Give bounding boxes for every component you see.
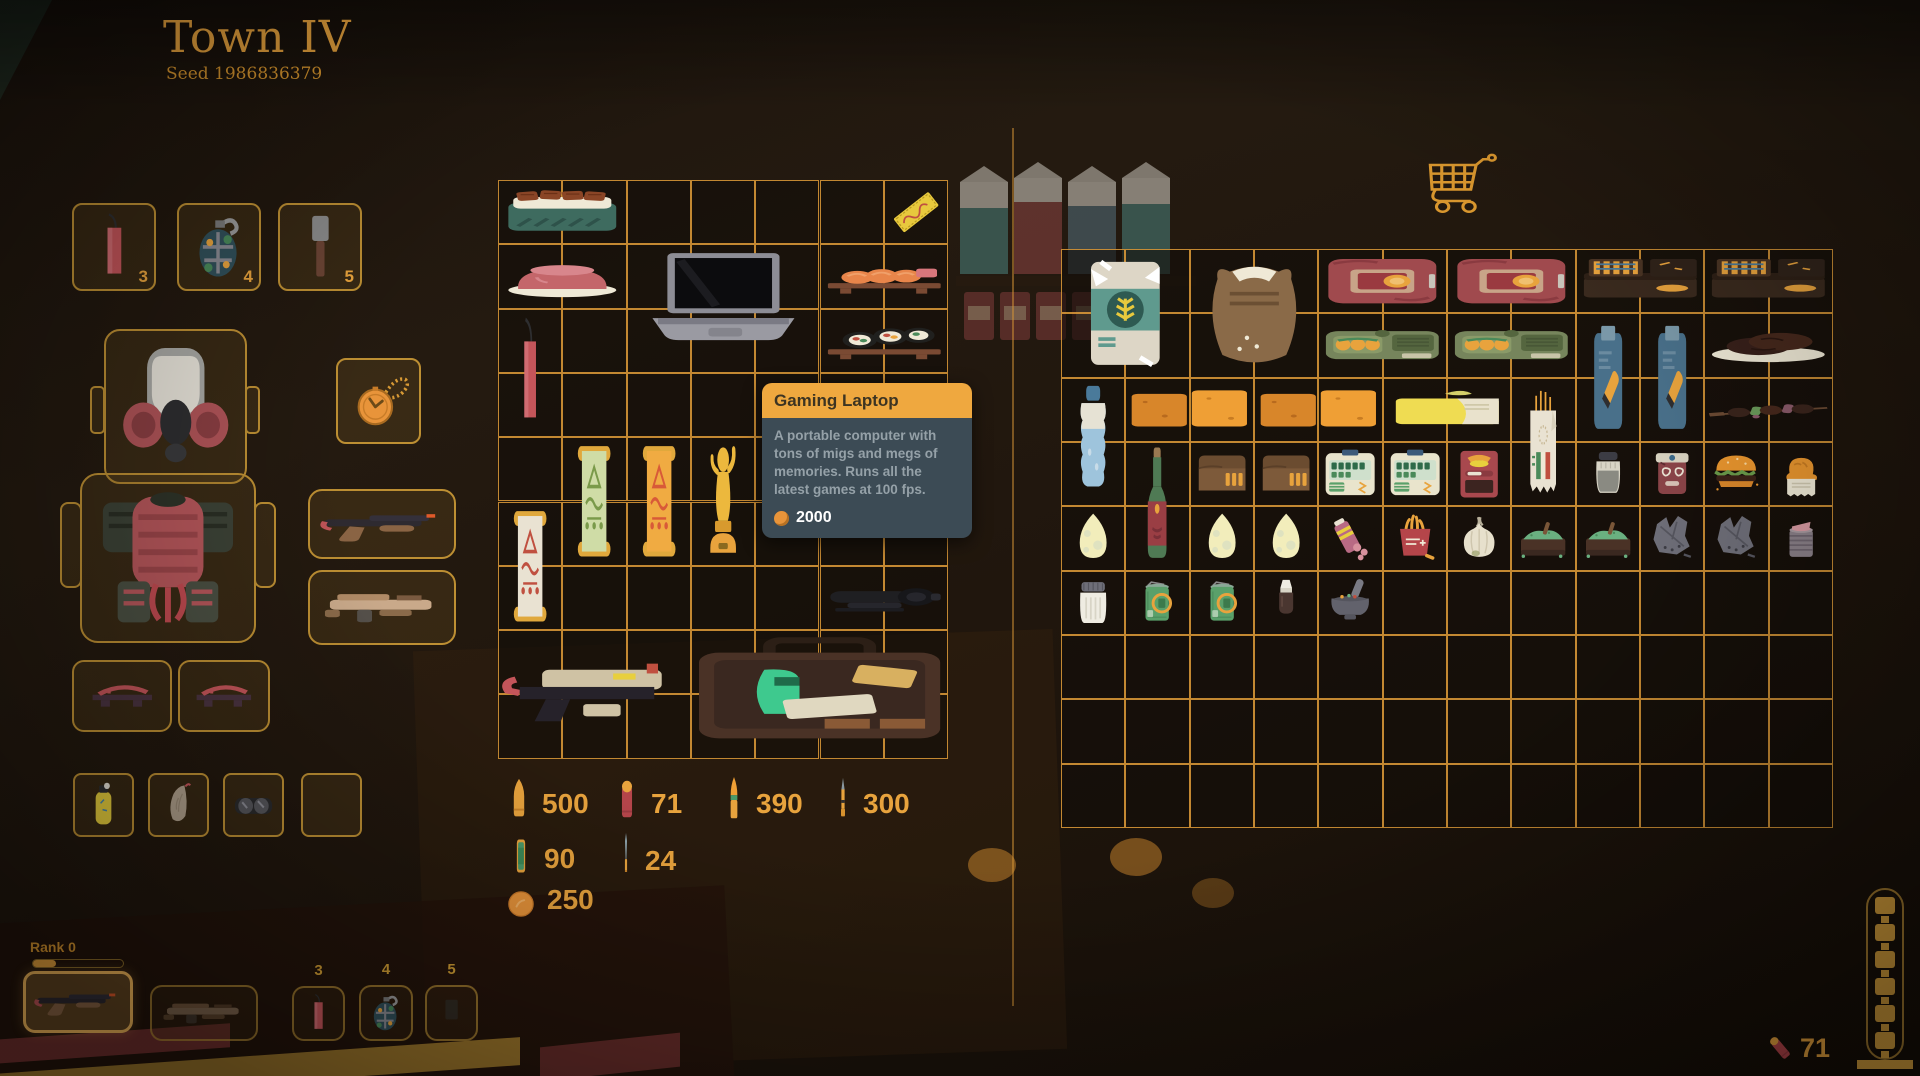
pocket-watch-icon [338,360,419,442]
trinket-slot[interactable] [336,358,421,444]
kebab-skewer[interactable] [1707,381,1830,439]
shop-grid-cell[interactable] [1383,571,1447,635]
quick-slot-grenade[interactable]: 4 [177,203,261,291]
scroll-orange[interactable] [630,440,688,563]
ammo-pouch[interactable] [1193,445,1251,503]
head-slot-ear-right [245,386,260,434]
open-can[interactable] [1772,509,1830,567]
coin-on-counter [1192,878,1234,908]
panel-divider [1012,128,1014,1006]
shoe-slot[interactable] [72,660,172,732]
shop-grid-cell[interactable] [1576,635,1640,699]
green-can[interactable] [1128,574,1186,632]
player-grid-cell[interactable] [562,309,626,373]
seed-label: Seed 1986836379 [166,64,322,84]
ammo-count: 71 [651,790,682,824]
background-banner [0,0,52,100]
metal-scrap[interactable] [1643,509,1701,567]
shop-grid-cell[interactable] [1769,764,1833,828]
sardine-tin[interactable] [1450,316,1573,374]
shop-grid-cell[interactable] [1769,571,1833,635]
flour-sack[interactable] [1193,252,1316,375]
shop-grid-cell[interactable] [1640,635,1704,699]
rank-progress-fill [33,960,56,967]
egg[interactable] [1193,509,1251,567]
unagi-bento[interactable] [501,183,624,241]
garlic[interactable] [1450,509,1508,567]
coin-on-counter [968,848,1016,882]
shop-grid-cell[interactable] [1190,699,1254,763]
magazine-base [1857,1060,1913,1069]
ammo-counter-bullet-rifle: 390 [722,776,803,824]
weapon-slot-rifle[interactable] [308,570,456,645]
gas-mask-icon [106,331,245,482]
quick-slot-dynamite[interactable]: 3 [72,203,156,291]
ammo-count: 90 [544,845,575,879]
hotbar-dynamite[interactable] [292,986,345,1041]
background-stripe-yellow [0,1037,520,1076]
player-grid-cell[interactable] [755,180,819,244]
butter-boxes[interactable] [1128,381,1251,439]
ammo-count: 250 [547,886,594,920]
background-stripe-red2 [540,1033,680,1076]
powder-box[interactable] [1579,509,1637,567]
ammo-counter-dart-blue: 24 [617,831,676,881]
shop-grid-cell[interactable] [1190,635,1254,699]
scroll-green[interactable] [565,440,623,563]
misc-slot-goggles[interactable] [223,773,284,837]
shop-grid-cell[interactable] [1704,571,1768,635]
shop-grid-cell[interactable] [1318,764,1382,828]
shop-grid-cell[interactable] [1125,699,1189,763]
scroll-white[interactable] [501,505,559,628]
player-grid-cell[interactable] [820,180,884,244]
salt-shaker[interactable] [1064,574,1122,632]
player-grid-cell[interactable] [691,180,755,244]
water-bottle[interactable] [1064,381,1122,504]
shop-grid-cell[interactable] [1511,635,1575,699]
shop-grid-cell[interactable] [1576,699,1640,763]
bullet-rifle-icon [722,776,746,824]
ammo-counter-coin: 250 [505,886,594,920]
ammo-counter-bullet-pistol: 500 [506,776,589,824]
magazine-shell-icon [1875,1032,1895,1058]
magazine-indicator [1866,888,1904,1060]
maki-roll-board[interactable] [823,312,946,370]
shop-grid-cell[interactable] [1061,699,1125,763]
samurai-armor-icon [82,475,254,641]
shop-grid-cell[interactable] [1640,571,1704,635]
ration-box[interactable] [1386,445,1444,503]
metal-scrap[interactable] [1707,509,1765,567]
shell-counter: 71 [1768,1032,1830,1064]
dynamite-stick[interactable] [501,312,559,435]
shop-grid-cell[interactable] [1576,764,1640,828]
player-grid-cell[interactable] [755,566,819,630]
game-screen: Town IV Seed 1986836379 Gaming Laptop A … [0,0,1920,1076]
player-grid-cell[interactable] [691,566,755,630]
player-grid-cell[interactable] [627,180,691,244]
shop-grid-cell[interactable] [1447,699,1511,763]
shop-grid-cell[interactable] [1125,764,1189,828]
shell-red-icon [613,776,641,824]
shop-grid-cell[interactable] [1254,764,1318,828]
powder-box[interactable] [1514,509,1572,567]
pistol[interactable] [501,633,688,756]
hotbar-rifle[interactable] [150,985,258,1041]
shop-grid-cell[interactable] [1640,764,1704,828]
shop-grid [1061,249,1833,828]
shop-grid-cell[interactable] [1769,699,1833,763]
shop-grid-cell[interactable] [1511,571,1575,635]
magazine-shell-icon [1875,924,1895,950]
magazine-shell-icon [1875,1005,1895,1031]
candy-pack[interactable] [1321,509,1379,567]
background-wall [1020,0,1920,150]
hotbar-slot-number: 4 [359,961,413,978]
shop-grid-cell[interactable] [1576,571,1640,635]
head-slot-ear-left [90,386,105,434]
shop-grid-cell[interactable] [1769,635,1833,699]
head-slot[interactable] [104,329,247,484]
egg[interactable] [1257,509,1315,567]
player-grid-cell[interactable] [562,373,626,437]
shop-grid-cell[interactable] [1061,764,1125,828]
shop-grid-cell[interactable] [1511,699,1575,763]
misc-slot-canister-yellow[interactable] [73,773,134,837]
shop-grid-cell[interactable] [1704,635,1768,699]
ammo-counter-battery-green: 90 [508,833,575,879]
shop-grid-cell[interactable] [1383,635,1447,699]
coin-icon [774,511,789,526]
shop-grid-cell[interactable] [1190,764,1254,828]
dropper-bottle[interactable] [1257,574,1315,632]
player-grid-cell[interactable] [627,566,691,630]
butter[interactable] [1386,381,1509,439]
snack-pack[interactable] [1450,445,1508,503]
tooltip-description: A portable computer with tons of migs an… [774,427,960,499]
tooltip-title: Gaming Laptop [762,383,972,418]
shop-grid-cell[interactable] [1704,764,1768,828]
body-slot[interactable] [80,473,256,643]
fried-chicken[interactable] [1772,445,1830,503]
jam-jar[interactable] [1643,445,1701,503]
hotbar-shotgun[interactable] [23,971,133,1033]
magazine-shell-icon [1875,978,1895,1004]
shop-grid-cell[interactable] [1447,635,1511,699]
dart-blue-icon [617,831,635,881]
steak-plate[interactable] [1707,316,1830,374]
body-slot-arm-left [60,502,82,588]
hotbar-slot-number: 5 [425,961,478,978]
ammo-pouch[interactable] [1257,445,1315,503]
ammo-counter-shell-red: 71 [613,776,682,824]
tooltip-price: 2000 [796,509,832,527]
ammo-count: 390 [756,790,803,824]
mortar-pestle[interactable] [1321,574,1379,632]
page-title: Town IV [163,12,352,63]
item-tooltip: Gaming Laptop A portable computer with t… [762,383,972,538]
coin-on-counter [1110,838,1162,876]
ham-plate[interactable] [501,247,624,305]
salmon-sushi-board[interactable] [823,247,946,305]
shop-grid-cell[interactable] [1640,699,1704,763]
weapon-slot-shotgun[interactable] [308,489,456,559]
shop-grid-cell[interactable] [1383,699,1447,763]
rifle-scope[interactable] [823,569,946,627]
shop-grid-cell[interactable] [1125,635,1189,699]
hotbar-grenade[interactable] [359,985,413,1041]
ammo-count: 24 [645,847,676,881]
egg[interactable] [1064,509,1122,567]
shop-grid-cell[interactable] [1061,635,1125,699]
player-grid-cell[interactable] [562,566,626,630]
bullet-sniper-icon [833,776,853,824]
ration-box[interactable] [1321,445,1379,503]
misc-slot-empty[interactable] [301,773,362,837]
toolbox[interactable] [694,633,945,756]
player-grid-cell[interactable] [691,373,755,437]
wine-bottle[interactable] [1128,445,1186,568]
shop-grid-cell[interactable] [1254,635,1318,699]
sardine-tin[interactable] [1321,316,1444,374]
magazine-shell-icon [1875,951,1895,977]
magazine-shell-icon [1875,897,1895,923]
player-grid-cell[interactable] [498,437,562,501]
ammo-counter-bullet-sniper: 300 [833,776,910,824]
shop-grid-cell[interactable] [1254,699,1318,763]
golden-ticket[interactable] [887,183,945,241]
shop-grid-cell[interactable] [1383,764,1447,828]
canned-ham[interactable] [1450,252,1573,310]
shopping-cart-icon[interactable] [1418,152,1506,224]
burger[interactable] [1707,445,1765,503]
gaming-laptop[interactable] [630,247,817,370]
shop-grid-cell[interactable] [1447,764,1511,828]
shell-count-value: 71 [1800,1033,1830,1064]
quick-slot-count: 5 [345,267,354,287]
bullet-packet[interactable] [1579,316,1637,439]
rank-progress-bar [32,959,124,968]
hotbar-slot-5[interactable] [425,985,478,1041]
shop-grid-cell[interactable] [1318,635,1382,699]
bullet-pistol-icon [506,776,532,824]
misc-slot-lung[interactable] [148,773,209,837]
battery-green-icon [508,833,534,879]
coin-icon [505,888,537,920]
baguette[interactable] [1514,381,1572,504]
body-slot-arm-right [254,502,276,588]
hotbar-slot-number: 3 [292,962,345,979]
shop-grid-cell[interactable] [1318,699,1382,763]
pepper-shaker[interactable] [1579,445,1637,503]
quick-slot-count: 3 [139,267,148,287]
ammo-count: 300 [863,790,910,824]
butter-boxes[interactable] [1257,381,1380,439]
shop-grid-cell[interactable] [1511,764,1575,828]
bullet-packet[interactable] [1643,316,1701,439]
player-grid-cell[interactable] [627,373,691,437]
quick-slot-count: 4 [244,267,253,287]
shotgun-shell-icon [1761,1028,1800,1068]
shop-grid-cell[interactable] [1704,699,1768,763]
ammo-crate[interactable] [1579,252,1702,310]
green-can[interactable] [1193,574,1251,632]
quick-slot-stick-grenade[interactable]: 5 [278,203,362,291]
fries[interactable] [1386,509,1444,567]
ammo-crate[interactable] [1707,252,1830,310]
rank-label: Rank 0 [30,939,76,955]
canned-ham[interactable] [1321,252,1444,310]
gold-trophy[interactable] [694,440,752,563]
ammo-count: 500 [542,790,589,824]
shop-grid-cell[interactable] [1447,571,1511,635]
flour-bag[interactable] [1064,252,1187,375]
shoe-slot[interactable] [178,660,270,732]
